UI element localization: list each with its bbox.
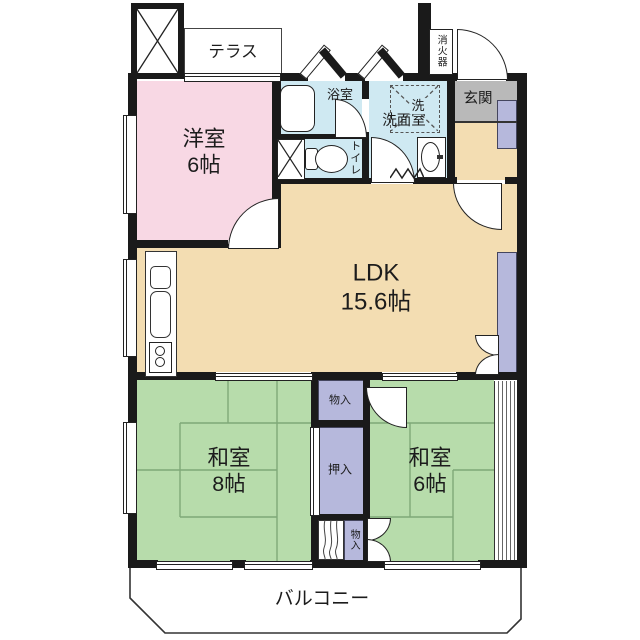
tatami8-balcony-window-1 xyxy=(156,561,233,570)
floor-plan: 消火器 xyxy=(0,0,640,640)
stove-burner-2 xyxy=(155,357,165,367)
toilet-bowl xyxy=(315,145,348,173)
terrace-window xyxy=(184,73,281,82)
kitchen-window xyxy=(123,259,137,357)
shaft-box xyxy=(131,3,184,79)
toilet-label: トイレ xyxy=(347,140,360,176)
entrance-label: 玄関 xyxy=(464,91,493,109)
extinguisher-label: 消火器 xyxy=(434,35,446,68)
tatami6-balcony-window xyxy=(384,561,481,570)
ldk-size: 15.6帖 xyxy=(341,288,412,317)
shutter-box xyxy=(494,381,517,561)
western-window xyxy=(123,115,137,214)
ldk-name: LDK xyxy=(341,259,412,288)
kitchen-sink xyxy=(150,291,171,338)
room-ldk-main xyxy=(137,247,517,372)
tatami8-name: 和室 xyxy=(207,445,250,471)
oshiire-label: 押入 xyxy=(328,463,352,478)
wood-board xyxy=(318,520,344,560)
ldk-tatami6-sliding-opening xyxy=(382,373,458,381)
oshiire-fusuma xyxy=(310,427,320,516)
tatami8-size: 8帖 xyxy=(207,471,250,497)
tatami6-name: 和室 xyxy=(408,445,451,471)
balcony-label: バルコニー xyxy=(275,587,370,610)
shaft-x-icon xyxy=(137,9,178,73)
ldk-label: LDK 15.6帖 xyxy=(341,259,412,318)
tatami8-label: 和室 8帖 xyxy=(207,445,250,497)
tatami6-label: 和室 6帖 xyxy=(408,445,451,497)
bath-label: 浴室 xyxy=(327,87,353,103)
tatami8-side-window xyxy=(123,422,137,514)
western-room-label: 洋室 6帖 xyxy=(182,126,225,178)
front-door xyxy=(457,29,508,80)
bath-door xyxy=(335,99,367,138)
shoe-cabinet xyxy=(497,100,517,149)
terrace-label: テラス xyxy=(208,42,257,62)
western-room-name: 洋室 xyxy=(182,126,225,152)
storage-upper-label: 物入 xyxy=(329,394,351,407)
pipe-space-box xyxy=(277,139,305,180)
western-room-size: 6帖 xyxy=(182,152,225,178)
washroom-label: 洗面室 xyxy=(382,113,426,131)
pipe-space-x-icon xyxy=(278,140,302,177)
laundry-label: 洗 xyxy=(409,98,426,114)
ldk-tatami8-sliding-opening xyxy=(215,373,313,381)
tatami8-balcony-window-2 xyxy=(244,561,313,570)
storage-lower-label: 物入 xyxy=(347,529,359,551)
tatami6-size: 6帖 xyxy=(408,471,451,497)
kitchen-sink-small xyxy=(150,266,171,289)
bathtub xyxy=(280,85,315,132)
ldk-cabinet xyxy=(497,252,517,375)
stove-burner-1 xyxy=(155,346,165,356)
step-zigzag xyxy=(390,167,424,180)
